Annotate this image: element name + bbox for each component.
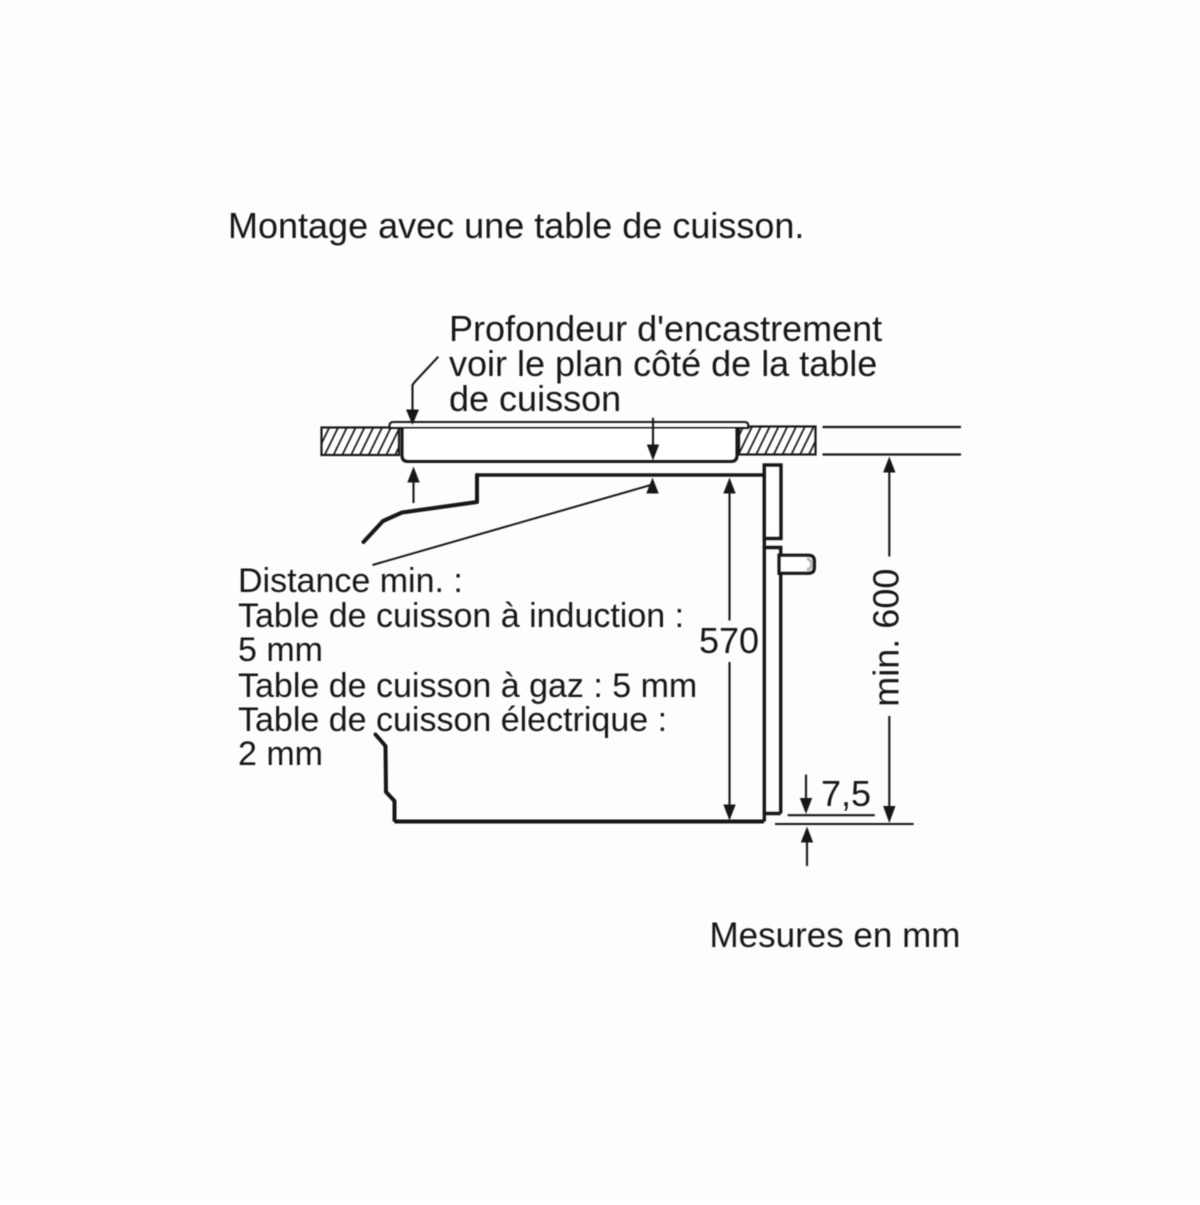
svg-text:Montage avec une table de cuis: Montage avec une table de cuisson. [228,205,804,246]
svg-text:Table de cuisson à gaz : 5 mm: Table de cuisson à gaz : 5 mm [238,667,697,705]
svg-text:Table de cuisson électrique :: Table de cuisson électrique : [238,701,667,739]
svg-text:Table de cuisson à induction :: Table de cuisson à induction : [238,597,684,635]
svg-text:min. 600: min. 600 [866,569,907,707]
svg-text:570: 570 [699,620,759,661]
svg-text:Distance min. :: Distance min. : [238,562,463,600]
svg-text:Mesures en mm: Mesures en mm [710,916,961,955]
svg-text:5 mm: 5 mm [238,631,323,669]
svg-text:7,5: 7,5 [821,773,871,814]
svg-text:de cuisson: de cuisson [449,378,621,419]
svg-text:2 mm: 2 mm [238,735,323,773]
